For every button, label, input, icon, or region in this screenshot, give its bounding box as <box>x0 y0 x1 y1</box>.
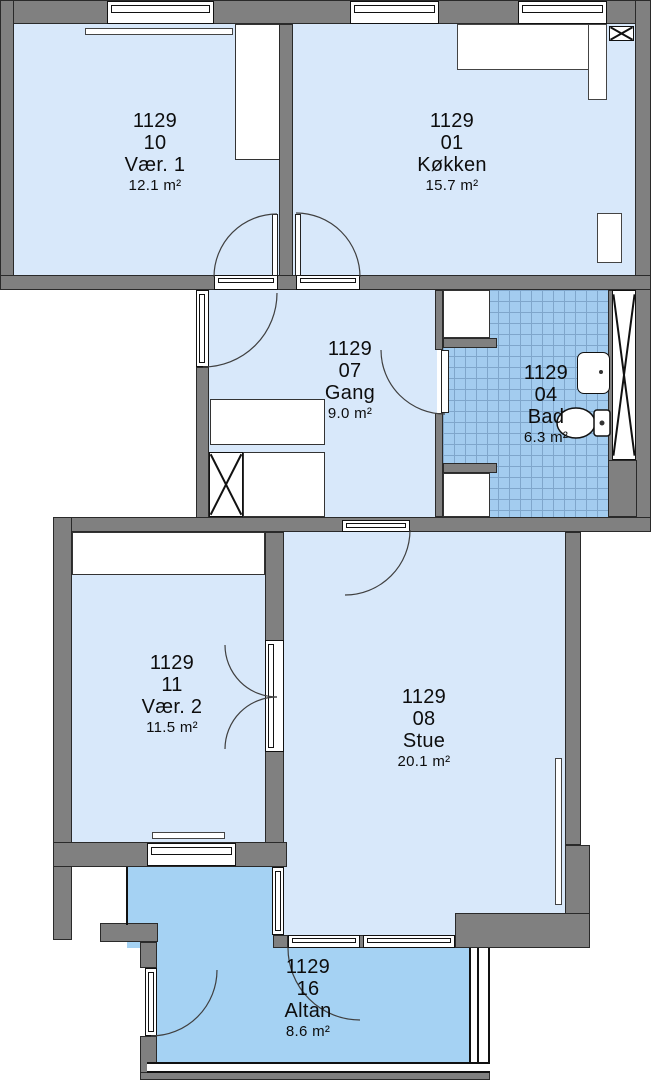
room-id: 1129 <box>476 362 616 384</box>
room-label-vaer1: 1129 10 Vær. 1 12.1 m² <box>85 110 225 196</box>
door-opening <box>296 275 360 290</box>
bath-closet <box>443 290 490 338</box>
room-label-stue: 1129 08 Stue 20.1 m² <box>354 686 494 772</box>
room-label-koekken: 1129 01 Køkken 15.7 m² <box>382 110 522 196</box>
kitchen-appliance <box>597 213 622 263</box>
window <box>363 935 455 948</box>
balcony-edge-line <box>469 948 471 1063</box>
door-opening <box>214 275 278 290</box>
room-number: 04 <box>476 384 616 406</box>
room-number: 08 <box>354 708 494 730</box>
wall-segment <box>443 338 497 348</box>
balcony-side-door <box>145 968 157 1036</box>
wall-segment <box>140 942 157 968</box>
room-number: 01 <box>382 132 522 154</box>
wall-segment <box>635 0 651 532</box>
room-number: 16 <box>238 978 378 1000</box>
door-leaf <box>441 350 449 413</box>
room-label-altan: 1129 16 Altan 8.6 m² <box>238 956 378 1042</box>
wall-segment <box>100 923 158 942</box>
room-name: Altan <box>238 1000 378 1022</box>
window <box>147 843 236 866</box>
room-label-bad: 1129 04 Bad 6.3 m² <box>476 362 616 448</box>
shaft-cross-icon <box>609 26 634 41</box>
room-id: 1129 <box>85 110 225 132</box>
entrance-door <box>196 290 209 367</box>
room-name: Vær. 2 <box>102 696 242 718</box>
balcony-railing <box>477 948 490 1073</box>
double-door-opening <box>265 640 284 752</box>
wall-segment <box>608 460 637 517</box>
wall-segment <box>140 1072 490 1080</box>
radiator <box>152 832 225 839</box>
room-number: 11 <box>102 674 242 696</box>
radiator <box>85 28 233 35</box>
wardrobe <box>72 532 265 575</box>
radiator <box>555 758 562 905</box>
wall-segment <box>565 532 581 845</box>
room-name: Stue <box>354 730 494 752</box>
wall-segment <box>435 413 443 517</box>
bath-closet <box>443 473 490 517</box>
door-opening <box>342 520 410 532</box>
wall-segment <box>435 290 443 350</box>
kitchen-counter <box>457 24 605 70</box>
room-label-vaer2: 1129 11 Vær. 2 11.5 m² <box>102 652 242 738</box>
wall-segment <box>443 463 497 473</box>
room-id: 1129 <box>102 652 242 674</box>
room-area: 20.1 m² <box>354 752 494 772</box>
room-name: Gang <box>280 382 420 404</box>
room-area: 6.3 m² <box>476 428 616 448</box>
wall-segment <box>273 935 288 948</box>
room-id: 1129 <box>280 338 420 360</box>
room-name: Køkken <box>382 154 522 176</box>
wardrobe <box>235 24 281 160</box>
door-leaf <box>272 214 278 276</box>
wall-segment <box>279 24 293 277</box>
room-id: 1129 <box>354 686 494 708</box>
floor-plan: 1129 10 Vær. 1 12.1 m² 1129 01 Køkken 15… <box>0 0 651 1080</box>
hall-closet <box>243 452 325 517</box>
room-area: 11.5 m² <box>102 718 242 738</box>
balcony-door <box>288 935 360 948</box>
wall-segment <box>455 913 590 948</box>
balcony-railing <box>147 1062 490 1073</box>
room-area: 8.6 m² <box>238 1022 378 1042</box>
room-area: 15.7 m² <box>382 176 522 196</box>
room-name: Vær. 1 <box>85 154 225 176</box>
room-id: 1129 <box>382 110 522 132</box>
wall-segment <box>53 517 72 940</box>
wall-segment <box>196 367 209 532</box>
wall-segment <box>0 0 14 290</box>
room-number: 07 <box>280 360 420 382</box>
room-label-gang: 1129 07 Gang 9.0 m² <box>280 338 420 424</box>
door-leaf <box>295 214 301 276</box>
window <box>272 867 284 935</box>
room-stue-floor <box>284 913 457 935</box>
shaft-cross-icon <box>209 452 243 517</box>
window <box>350 1 439 24</box>
room-id: 1129 <box>238 956 378 978</box>
window <box>518 1 607 24</box>
balcony-edge-line <box>126 867 128 925</box>
room-name: Bad <box>476 406 616 428</box>
room-area: 12.1 m² <box>85 176 225 196</box>
room-number: 10 <box>85 132 225 154</box>
room-area: 9.0 m² <box>280 404 420 424</box>
window <box>107 1 214 24</box>
kitchen-counter <box>588 24 607 100</box>
